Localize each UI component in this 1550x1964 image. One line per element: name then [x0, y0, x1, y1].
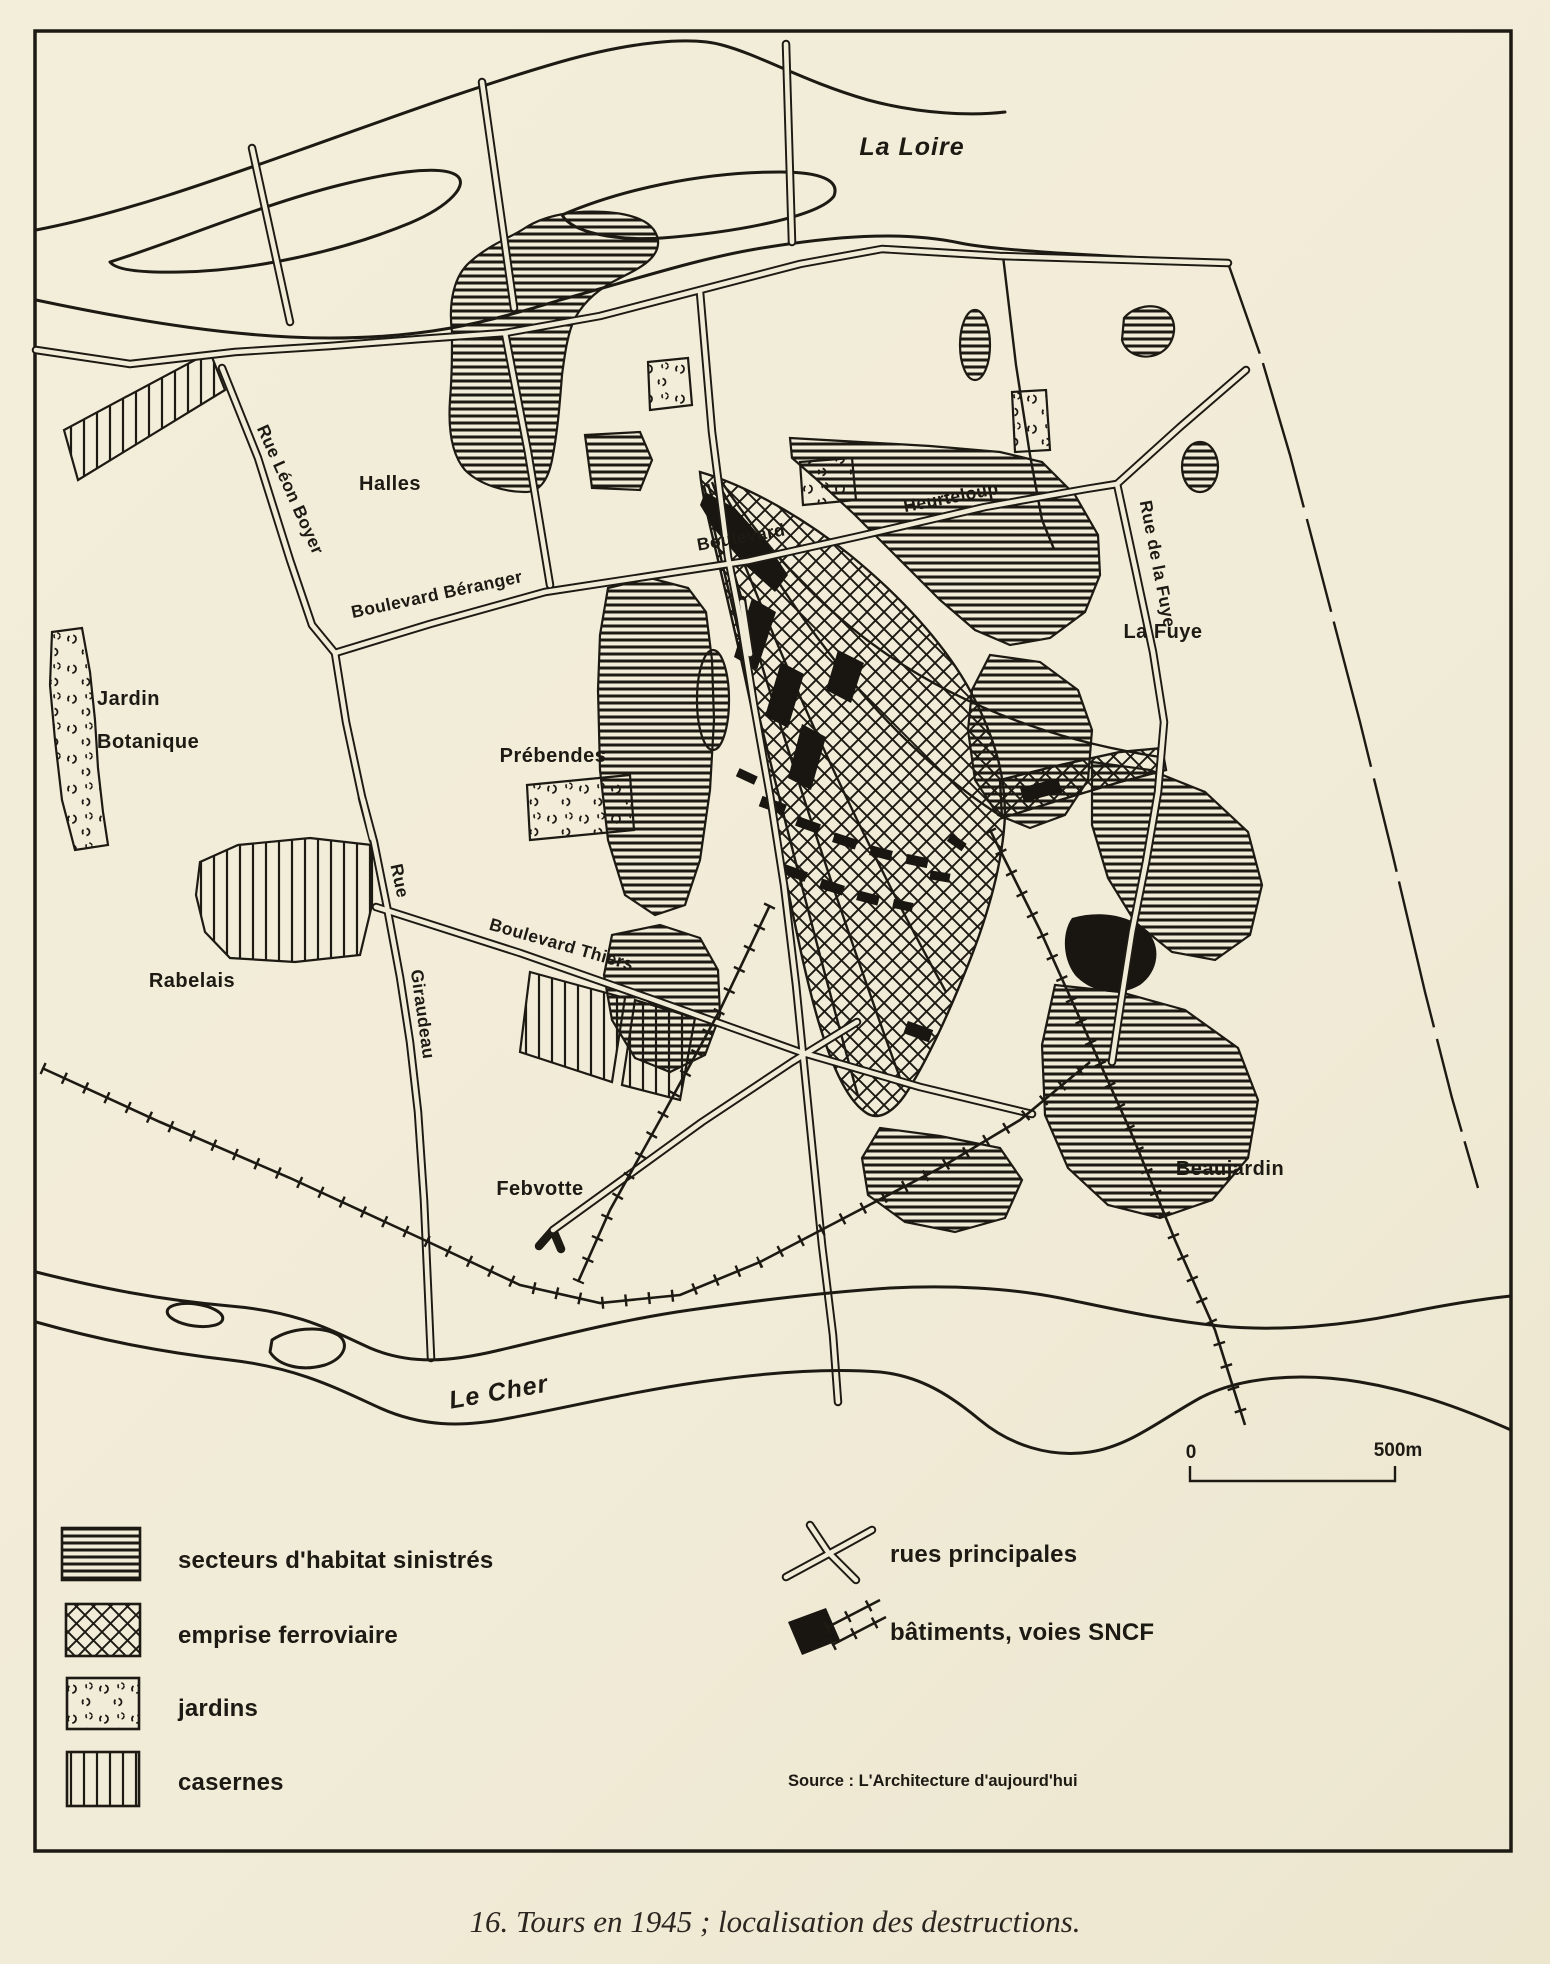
destroyed-northeast-small-1 [960, 310, 990, 380]
garden-heurteloup [800, 458, 856, 505]
destroyed-near-cher [862, 1128, 1022, 1232]
legend: secteurs d'habitat sinistrés emprise fer… [62, 1525, 1154, 1806]
scale-max: 500m [1374, 1440, 1423, 1461]
label-prebendes: Prébendes [500, 745, 607, 767]
legend-label-jardins: jardins [177, 1695, 258, 1722]
scale-zero: 0 [1186, 1442, 1197, 1463]
legend-swatch-jardins [67, 1678, 139, 1729]
legend-label-sncf: bâtiments, voies SNCF [890, 1619, 1154, 1646]
legend-swatch-casernes [67, 1752, 139, 1806]
label-beaujardin: Beaujardin [1176, 1158, 1284, 1180]
loire-island-west [110, 170, 460, 272]
prebendes-shape [527, 775, 634, 840]
destroyed-beaujardin-south [1042, 985, 1258, 1218]
legend-label-rues: rues principales [890, 1541, 1077, 1568]
destroyed-northeast-small-2 [1122, 306, 1174, 356]
destroyed-near-wedge-apex [585, 432, 652, 490]
label-la-fuye: La Fuye [1123, 621, 1202, 643]
barracks-rabelais [196, 838, 372, 962]
figure-caption: 16. Tours en 1945 ; localisation des des… [469, 1904, 1080, 1939]
scanned-map-page: Rue Léon Boyer Boulevard Béranger Boulev… [0, 0, 1550, 1964]
label-rue-giraudeau-word1: Rue [387, 862, 414, 900]
scale-bar: 0 500m [1186, 1440, 1423, 1481]
cher-island-large [270, 1329, 344, 1368]
scale-bar-line [1190, 1466, 1395, 1481]
label-jardin-line2: Botanique [97, 731, 199, 753]
legend-icon-sncf [788, 1600, 886, 1655]
garden-east [1012, 390, 1050, 452]
barracks-northwest [64, 352, 225, 480]
garden-northeast-halles [648, 358, 692, 410]
legend-label-sinistres: secteurs d'habitat sinistrés [178, 1547, 493, 1574]
cher-river [36, 1272, 1511, 1453]
label-le-cher: Le Cher [447, 1370, 551, 1415]
tours-map-figure: Rue Léon Boyer Boulevard Béranger Boulev… [0, 0, 1550, 1964]
legend-swatch-sinistres [62, 1528, 140, 1580]
label-la-loire: La Loire [859, 133, 964, 161]
destroyed-station-west-strip [598, 578, 714, 915]
boundary-east [1228, 263, 1478, 1188]
legend-icon-rues-principales [786, 1525, 872, 1580]
cher-north-bank [36, 1272, 1511, 1360]
legend-label-ferroviaire: emprise ferroviaire [178, 1622, 398, 1649]
loire-river [36, 41, 1228, 338]
label-halles: Halles [359, 473, 421, 495]
label-febvotte: Febvotte [496, 1178, 583, 1200]
cher-south-bank [36, 1322, 1511, 1453]
legend-swatch-ferroviaire [66, 1604, 140, 1656]
febvotte-y-junction [539, 1230, 561, 1249]
legend-label-casernes: casernes [178, 1769, 284, 1796]
label-rabelais: Rabelais [149, 970, 235, 992]
destroyed-east-of-fuye [1182, 442, 1218, 492]
label-jardin-line1: Jardin [97, 688, 160, 710]
label-bd-beranger: Boulevard Béranger [349, 566, 524, 622]
source-note: Source : L'Architecture d'aujourd'hui [788, 1772, 1078, 1790]
